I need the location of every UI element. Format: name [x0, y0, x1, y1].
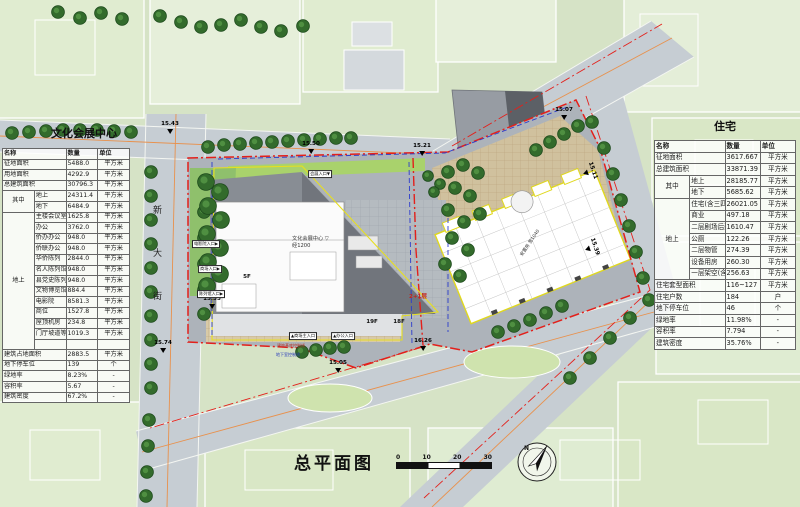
elevation-marker-icon — [167, 129, 173, 134]
value-cell: 6484.9 — [66, 201, 98, 212]
label-text: 商场入口 — [200, 266, 217, 271]
name-cell: 名人陈列馆 — [34, 265, 66, 276]
tree-icon — [457, 215, 471, 229]
name-cell: 建筑占地面积 — [3, 350, 67, 361]
table-row: 地下停车位46个 — [655, 303, 796, 315]
tree-icon — [140, 465, 154, 479]
tree-icon — [563, 371, 577, 385]
unit-cell: 平方米 — [98, 276, 130, 287]
value-cell: 948.0 — [66, 265, 98, 276]
group-cell: 地上 — [3, 212, 35, 350]
tree-icon — [337, 340, 351, 354]
elevation-marker-icon — [419, 151, 425, 156]
value-cell: 3762.0 — [66, 223, 98, 234]
tree-icon — [555, 299, 569, 313]
column-header: 单位 — [98, 149, 130, 160]
unit-cell: 个 — [760, 303, 795, 315]
value-cell: 8581.3 — [66, 297, 98, 308]
value-cell: 24311.4 — [66, 191, 98, 202]
value-cell: 2883.5 — [66, 350, 98, 361]
tree-icon — [543, 135, 557, 149]
tree-icon — [606, 167, 620, 181]
tree-icon — [254, 20, 268, 34]
tree-icon — [212, 211, 230, 229]
value-cell: 234.8 — [66, 318, 98, 329]
unit-cell: - — [760, 326, 795, 338]
office-label: ▲办公入口 — [331, 332, 355, 340]
name-cell: 总建筑面积 — [3, 180, 67, 191]
name-cell: 地下停车位 — [3, 360, 67, 371]
unit-cell: 平方米 — [98, 265, 130, 276]
tree-icon — [281, 134, 295, 148]
value-cell: 5488.0 — [66, 159, 98, 170]
value-cell — [66, 339, 98, 350]
tree-icon — [249, 136, 263, 150]
value-cell: 948.0 — [66, 233, 98, 244]
column-header: 数量 — [66, 149, 98, 160]
group-cell: 其中 — [3, 191, 35, 212]
context-roof — [344, 50, 404, 90]
building_line-label: 建筑基底控制线 — [277, 343, 305, 349]
tree-icon — [194, 20, 208, 34]
table-row: 其中地上24311.4平方米 — [3, 191, 130, 202]
elevation-marker-icon — [583, 169, 590, 176]
name-cell: 用地面积 — [3, 170, 67, 181]
residential-table: 名称数量单位征地面积3617.667平方米总建筑面积33871.39平方米其中地… — [654, 140, 796, 350]
unit-cell: - — [760, 314, 795, 326]
name-cell: 容积率 — [3, 382, 67, 393]
unit-cell: 户 — [760, 291, 795, 303]
table-row: 容积率5.67- — [3, 382, 130, 393]
label-text: 商场主入口 — [294, 333, 315, 338]
tree-icon — [529, 143, 543, 157]
elevation-value: 15.43 — [161, 121, 179, 127]
north-label: N — [524, 445, 529, 452]
arrow-icon: ▶ — [215, 241, 218, 246]
unit-cell: 平方米 — [760, 210, 795, 222]
name-cell: 地下停车位 — [655, 303, 726, 315]
tree-icon — [265, 135, 279, 149]
table-row: 绿地率11.98%- — [655, 314, 796, 326]
tree-icon — [344, 131, 358, 145]
elevation-value: 15.50 — [302, 141, 320, 147]
elevation-marker-icon — [585, 245, 592, 252]
unit-cell: 平方米 — [760, 233, 795, 245]
tree-icon — [142, 413, 156, 427]
tree-icon — [197, 307, 211, 321]
unit-cell: - — [760, 338, 795, 350]
tree-icon — [614, 193, 628, 207]
tree-icon — [199, 197, 217, 215]
name-cell: 地上 — [690, 175, 725, 187]
name-cell: 住宅户数 — [655, 291, 726, 303]
context-roof — [352, 22, 392, 46]
value-cell: 4292.9 — [66, 170, 98, 181]
north-arrow-icon: N — [514, 439, 560, 485]
tree-icon — [139, 489, 153, 503]
label-text: 会展入口 — [310, 171, 327, 176]
exhibition-label: 会展入口▼ — [308, 170, 332, 178]
label-text: 建筑基底控制线 — [277, 343, 305, 348]
name-cell: 县党史陈列 — [34, 276, 66, 287]
scale-tick: 20 — [453, 454, 461, 461]
value-cell: 33871.39 — [725, 164, 760, 176]
elevation-value: 15.05 — [329, 360, 347, 366]
value-cell: 8.23% — [66, 371, 98, 382]
value-cell: 260.30 — [725, 256, 760, 268]
name-cell — [34, 339, 66, 350]
scale-bar: 0 10 20 30 — [396, 454, 492, 469]
site-label-line2: 经1200 — [292, 243, 310, 249]
table-row: 总建筑面积33871.39平方米 — [655, 164, 796, 176]
name-cell: 侨办办公 — [34, 233, 66, 244]
tree-icon — [144, 381, 158, 395]
value-cell: 274.39 — [725, 245, 760, 257]
tree-icon — [94, 6, 108, 20]
tree-icon — [539, 306, 553, 320]
name-cell: 二层剧场后勤 — [690, 222, 725, 234]
arrow-icon: ▶ — [220, 291, 223, 296]
tree-icon — [448, 181, 462, 195]
spot-elevation: 15.74 — [154, 341, 172, 353]
tree-icon — [453, 269, 467, 283]
value-cell: 497.18 — [725, 210, 760, 222]
spot-elevation: 15.55 — [203, 297, 221, 309]
unit-cell: 平方米 — [760, 175, 795, 187]
label-text: 办公入口 — [336, 333, 353, 338]
value-cell: 5685.62 — [725, 187, 760, 199]
label-text: 5F — [243, 274, 251, 280]
name-cell: 地上 — [34, 191, 66, 202]
spot-elevation: 15.50 — [302, 142, 320, 154]
name-cell: 屋顶机房 — [34, 318, 66, 329]
residential-table-title: 住宅 — [655, 118, 795, 134]
f18-label: 18F — [393, 319, 405, 325]
tree-icon — [557, 127, 571, 141]
table-row: 总建筑面积30796.3平方米 — [3, 180, 130, 191]
name-cell: 征地面积 — [655, 152, 726, 164]
tree-icon — [597, 141, 611, 155]
elevation-marker-icon — [420, 346, 426, 351]
value-cell: 184 — [725, 291, 760, 303]
tree-icon — [214, 18, 228, 32]
label-text: 电影院入口 — [194, 241, 215, 246]
value-cell: 139 — [66, 360, 98, 371]
elevation-value: 15.74 — [154, 340, 172, 346]
value-cell: 256.63 — [725, 268, 760, 280]
value-cell: 1610.47 — [725, 222, 760, 234]
tree-icon — [233, 137, 247, 151]
value-cell: 948.0 — [66, 276, 98, 287]
table-row: 其中地上28185.77平方米 — [655, 175, 796, 187]
tree-icon — [115, 12, 129, 26]
name-cell: 总建筑面积 — [655, 164, 726, 176]
tree-icon — [623, 311, 637, 325]
value-cell: 884.4 — [66, 286, 98, 297]
spot-elevation: 15.05 — [329, 361, 347, 373]
value-cell: 2844.0 — [66, 254, 98, 265]
name-cell: 地下 — [690, 187, 725, 199]
value-cell: 67.2% — [66, 392, 98, 403]
tree-icon — [441, 203, 455, 217]
value-cell: 30796.3 — [66, 180, 98, 191]
name-cell: 华侨陈列 — [34, 254, 66, 265]
name-cell: 文物博览馆 — [34, 286, 66, 297]
unit-cell: 平方米 — [98, 201, 130, 212]
elevation-value: 15.21 — [413, 143, 431, 149]
unit-cell: 平方米 — [760, 152, 795, 164]
name-cell: 住宅(含三四层) — [690, 198, 725, 210]
unit-cell: 平方米 — [98, 286, 130, 297]
unit-cell: 平方米 — [760, 256, 795, 268]
column-header: 名称 — [3, 149, 67, 160]
tree-icon — [51, 5, 65, 19]
column-header: 数量 — [725, 141, 760, 153]
tree-icon — [5, 126, 19, 140]
table-row: 征地面积5488.0平方米 — [3, 159, 130, 170]
unit-cell: 平方米 — [760, 198, 795, 210]
tree-icon — [73, 11, 87, 25]
site-center-label: 文化会展中心 ▽ 经1200 — [292, 236, 329, 250]
tree-icon — [603, 331, 617, 345]
cinema-label: 电影院入口▶ — [192, 240, 220, 248]
tree-icon — [636, 271, 650, 285]
gallery-label: 陈列馆入口▶ — [197, 290, 225, 298]
name-cell: 商位 — [34, 307, 66, 318]
name-cell: 主楼会议室 — [34, 212, 66, 223]
elevation-marker-icon — [335, 368, 341, 373]
tree-icon — [523, 313, 537, 327]
name-cell: 建筑密度 — [655, 338, 726, 350]
tree-icon — [463, 189, 477, 203]
tree-icon — [629, 245, 643, 259]
unit-cell: 平方米 — [98, 350, 130, 361]
label-text: 18F — [393, 319, 405, 325]
unit-cell: 平方米 — [760, 245, 795, 257]
unit-cell: 平方米 — [98, 180, 130, 191]
unit-cell — [98, 339, 130, 350]
elevation-value: 16.26 — [414, 338, 432, 344]
value-cell: 28185.77 — [725, 175, 760, 187]
site-plan-canvas: 文化会展中心 名称数量单位征地面积5488.0平方米用地面积4292.9平方米总… — [0, 0, 800, 507]
tree-icon — [445, 231, 459, 245]
value-cell: 5.67 — [66, 382, 98, 393]
value-cell: 3617.667 — [725, 152, 760, 164]
unit-cell: 平方米 — [98, 307, 130, 318]
culture-table: 名称数量单位征地面积5488.0平方米用地面积4292.9平方米总建筑面积307… — [2, 148, 130, 403]
scale-tick: 0 — [396, 454, 400, 461]
tree-icon — [456, 158, 470, 172]
unit-cell: 平方米 — [98, 212, 130, 223]
data-table: 名称数量单位征地面积3617.667平方米总建筑面积33871.39平方米其中地… — [654, 140, 796, 350]
value-cell: 1019.3 — [66, 329, 98, 340]
table-row: 住宅户数184户 — [655, 291, 796, 303]
tree-icon — [144, 189, 158, 203]
data-table: 名称数量单位征地面积5488.0平方米用地面积4292.9平方米总建筑面积307… — [2, 148, 130, 403]
tree-icon — [461, 243, 475, 257]
unit-cell: - — [98, 382, 130, 393]
unit-cell: 平方米 — [98, 170, 130, 181]
tree-icon — [585, 115, 599, 129]
value-cell: 7.794 — [725, 326, 760, 338]
tree-icon — [211, 183, 229, 201]
unit-cell: 平方米 — [98, 318, 130, 329]
value-cell: 116~127 — [725, 280, 760, 292]
unit-cell: 平方米 — [760, 164, 795, 176]
spot-elevation: 15.43 — [161, 122, 179, 134]
tree-icon — [153, 9, 167, 23]
group-cell: 其中 — [655, 175, 690, 198]
name-cell: 容积率 — [655, 326, 726, 338]
unit-cell: 平方米 — [98, 159, 130, 170]
tree-icon — [234, 13, 248, 27]
scale-tick: 10 — [422, 454, 430, 461]
label-text: 地下室控制线 — [276, 352, 300, 357]
value-cell: 948.0 — [66, 244, 98, 255]
elevation-marker-icon — [160, 348, 166, 353]
unit-cell: 平方米 — [98, 191, 130, 202]
value-cell: 46 — [725, 303, 760, 315]
tree-icon — [323, 341, 337, 355]
mall_main-label: ▲商场主入口 — [289, 332, 317, 340]
column-header: 单位 — [760, 141, 795, 153]
value-cell: 122.26 — [725, 233, 760, 245]
table-row: 住宅套型面积116~127平方米 — [655, 280, 796, 292]
page-title: 总平面图 — [294, 449, 374, 474]
unit-cell: 平方米 — [760, 280, 795, 292]
unit-cell: - — [98, 392, 130, 403]
name-cell: 门厅坡道等 — [34, 329, 66, 340]
unit-cell: 平方米 — [760, 187, 795, 199]
unit-cell: 平方米 — [98, 233, 130, 244]
unit-cell: 平方米 — [760, 222, 795, 234]
elevation-mark-icon: ▽ — [325, 236, 329, 242]
table-row: 绿地率8.23%- — [3, 371, 130, 382]
spot-elevation: 15.21 — [413, 144, 431, 156]
table-row: 征地面积3617.667平方米 — [655, 152, 796, 164]
culture-table-title: 文化会展中心 — [28, 125, 140, 141]
table-row: 用地面积4292.9平方米 — [3, 170, 130, 181]
name-cell: 二层物管 — [690, 245, 725, 257]
value-cell: 11.98% — [725, 314, 760, 326]
group-cell: 地上 — [655, 198, 690, 279]
column-header: 名称 — [655, 141, 726, 153]
tree-icon — [141, 439, 155, 453]
table-header-row: 名称数量单位 — [655, 141, 796, 153]
unit-cell: 个 — [98, 360, 130, 371]
table-row: 地上住宅(含三四层)26021.05平方米 — [655, 198, 796, 210]
tree-icon — [144, 165, 158, 179]
unit-cell: 平方米 — [98, 329, 130, 340]
f19-label: 19F — [366, 319, 378, 325]
label-text: 2+1层 — [409, 294, 427, 300]
tree-icon — [201, 140, 215, 154]
tree-icon — [217, 138, 231, 152]
name-cell: 绿地率 — [3, 371, 67, 382]
unit-cell: 平方米 — [98, 223, 130, 234]
tree-icon — [471, 166, 485, 180]
street-name-label: 新大街 — [150, 205, 163, 334]
name-cell: 建筑密度 — [3, 392, 67, 403]
table-row: 建筑密度35.76%- — [655, 338, 796, 350]
f5-label: 5F — [243, 274, 251, 280]
tree-icon — [441, 165, 455, 179]
name-cell: 地下 — [34, 201, 66, 212]
scale-ticks: 0 10 20 30 — [396, 454, 492, 461]
site-label-line1: 文化会展中心 — [292, 236, 323, 242]
tree-icon — [507, 319, 521, 333]
tree-icon — [274, 24, 288, 38]
value-cell: 26021.05 — [725, 198, 760, 210]
spot-elevation: 15.07 — [555, 108, 573, 120]
unit-cell: - — [98, 371, 130, 382]
arrow-icon: ▶ — [217, 266, 220, 271]
tree-icon — [622, 219, 636, 233]
table-row: 建筑密度67.2%- — [3, 392, 130, 403]
tree-icon — [174, 15, 188, 29]
spot-elevation: 16.26 — [414, 339, 432, 351]
value-cell: 1527.8 — [66, 307, 98, 318]
tree-icon — [329, 131, 343, 145]
name-cell: 绿地率 — [655, 314, 726, 326]
tree-icon — [583, 351, 597, 365]
scale-bar-graphic — [396, 462, 492, 469]
unit-cell: 平方米 — [98, 244, 130, 255]
tree-icon — [422, 170, 434, 182]
unit-cell: 平方米 — [98, 297, 130, 308]
scale-tick: 30 — [484, 454, 492, 461]
name-cell: 住宅套型面积 — [655, 280, 726, 292]
mall-label: 商场入口▶ — [198, 265, 222, 273]
name-cell: 设备用房 — [690, 256, 725, 268]
name-cell: 电影院 — [34, 297, 66, 308]
name-cell: 办公 — [34, 223, 66, 234]
name-cell: 征地面积 — [3, 159, 67, 170]
table-row: 建筑占地面积2883.5平方米 — [3, 350, 130, 361]
tree-icon — [491, 325, 505, 339]
elevation-marker-icon — [561, 115, 567, 120]
tree-icon — [296, 19, 310, 33]
f2p1-label: 2+1层 — [409, 292, 427, 300]
tree-icon — [309, 343, 323, 357]
tree-icon — [144, 357, 158, 371]
table-header-row: 名称数量单位 — [3, 149, 130, 160]
value-cell: 35.76% — [725, 338, 760, 350]
tree-icon — [438, 257, 452, 271]
label-text: 19F — [366, 319, 378, 325]
label-text: 陈列馆入口 — [199, 291, 220, 296]
table-row: 地上主楼会议室1625.8平方米 — [3, 212, 130, 223]
name-cell: 商业 — [690, 210, 725, 222]
name-cell: 侨联办公 — [34, 244, 66, 255]
value-cell: 1625.8 — [66, 212, 98, 223]
unit-cell: 平方米 — [98, 254, 130, 265]
table-row: 地下停车位139个 — [3, 360, 130, 371]
arrow-icon: ▼ — [327, 171, 330, 176]
unit-cell: 平方米 — [760, 268, 795, 280]
elevation-marker-icon — [209, 304, 215, 309]
tree-icon — [571, 119, 585, 133]
basement_line-label: 地下室控制线 — [276, 352, 300, 358]
tree-icon — [473, 207, 487, 221]
name-cell: 公厕 — [690, 233, 725, 245]
table-row: 容积率7.794- — [655, 326, 796, 338]
name-cell: 一层架空(含坡道) — [690, 268, 725, 280]
elevation-value: 15.07 — [555, 107, 573, 113]
elevation-marker-icon — [308, 149, 314, 154]
tree-icon — [428, 186, 440, 198]
